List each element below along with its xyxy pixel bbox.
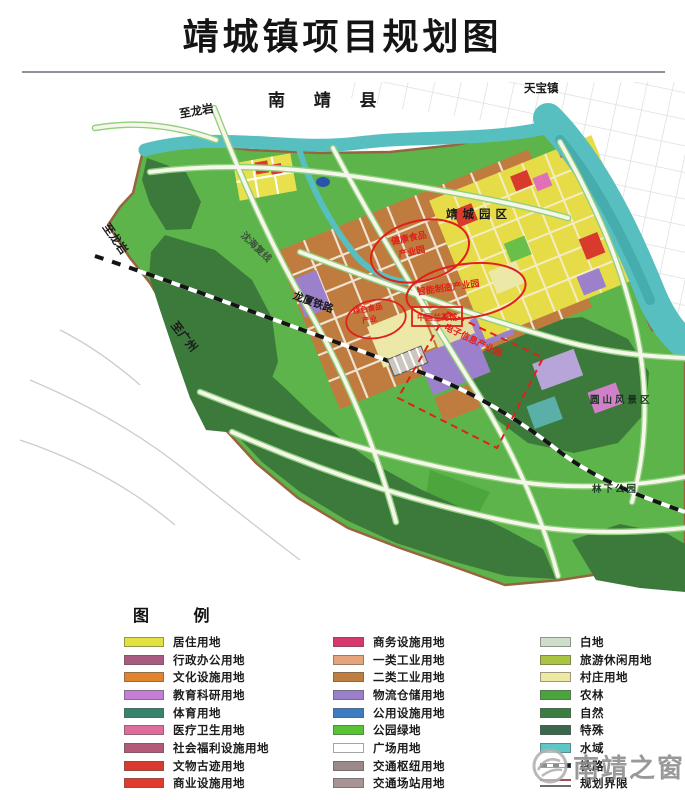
watermark: 南靖之窗 — [529, 745, 685, 787]
legend-label: 白地 — [580, 634, 604, 650]
legend-swatch — [540, 725, 571, 735]
legend-swatch — [540, 672, 571, 682]
legend-label: 社会福利设施用地 — [173, 740, 269, 756]
legend-swatch — [124, 708, 164, 718]
legend-label: 特殊 — [580, 722, 604, 738]
legend-row: 交通场站用地 — [333, 775, 445, 793]
legend-swatch — [540, 690, 571, 700]
legend-row: 自然 — [540, 704, 652, 722]
legend-row: 文物古迹用地 — [124, 757, 269, 775]
legend-swatch — [124, 725, 164, 735]
legend-row: 广场用地 — [333, 739, 445, 757]
legend-swatch — [124, 690, 164, 700]
legend-label: 教育科研用地 — [173, 687, 245, 703]
legend-column-1: 居住用地行政办公用地文化设施用地教育科研用地体育用地医疗卫生用地社会福利设施用地… — [124, 633, 269, 792]
legend-label: 商业设施用地 — [173, 775, 245, 791]
legend-row: 文化设施用地 — [124, 668, 269, 686]
legend-label: 二类工业用地 — [373, 669, 445, 685]
legend-row: 特殊 — [540, 721, 652, 739]
map-label-linxia-park: 林下公园 — [592, 481, 638, 495]
legend-label: 一类工业用地 — [373, 652, 445, 668]
legend-row: 旅游休闲用地 — [540, 651, 652, 669]
legend-row: 行政办公用地 — [124, 651, 269, 669]
map-label-tianbao: 天宝镇 — [524, 80, 559, 96]
legend-swatch — [124, 672, 164, 682]
legend-swatch — [124, 743, 164, 753]
legend-swatch — [540, 708, 571, 718]
legend-row: 商业设施用地 — [124, 775, 269, 793]
legend-label: 交通枢纽用地 — [373, 758, 445, 774]
legend-label: 行政办公用地 — [173, 652, 245, 668]
watermark-text: 南靖之窗 — [573, 748, 685, 785]
legend-row: 医疗卫生用地 — [124, 721, 269, 739]
legend-label: 物流仓储用地 — [373, 687, 445, 703]
legend-title: 图 例 — [133, 602, 229, 626]
legend-row: 社会福利设施用地 — [124, 739, 269, 757]
pond — [316, 177, 330, 187]
legend-swatch — [540, 637, 571, 647]
legend-swatch — [333, 690, 364, 700]
legend-label: 文化设施用地 — [173, 669, 245, 685]
legend-swatch — [333, 778, 364, 788]
legend-label: 居住用地 — [173, 634, 221, 650]
legend-swatch — [124, 655, 164, 665]
legend-row: 村庄用地 — [540, 668, 652, 686]
legend-row: 体育用地 — [124, 704, 269, 722]
legend-swatch — [333, 743, 364, 753]
legend-swatch — [333, 672, 364, 682]
legend-swatch — [333, 725, 364, 735]
legend-swatch — [124, 778, 164, 788]
legend-label: 自然 — [580, 705, 604, 721]
map-label-jingcheng-park: 靖城园区 — [446, 206, 512, 222]
map-label-yuanshan-scenic: 圆山风景区 — [590, 392, 653, 406]
legend-column-2: 商务设施用地一类工业用地二类工业用地物流仓储用地公用设施用地公园绿地广场用地交通… — [333, 633, 445, 792]
legend-label: 广场用地 — [373, 740, 421, 756]
legend-row: 物流仓储用地 — [333, 686, 445, 704]
legend-swatch — [333, 708, 364, 718]
legend-swatch — [333, 761, 364, 771]
legend-swatch — [333, 655, 364, 665]
legend-swatch — [540, 655, 571, 665]
legend-label: 商务设施用地 — [373, 634, 445, 650]
legend-row: 农林 — [540, 686, 652, 704]
legend-row: 教育科研用地 — [124, 686, 269, 704]
legend-swatch — [124, 761, 164, 771]
legend-label: 体育用地 — [173, 705, 221, 721]
map-label-county: 南 靖 县 — [268, 86, 388, 111]
legend-label: 交通场站用地 — [373, 775, 445, 791]
legend-row: 居住用地 — [124, 633, 269, 651]
legend-row: 白地 — [540, 633, 652, 651]
legend-label: 村庄用地 — [580, 669, 628, 685]
legend-label: 文物古迹用地 — [173, 758, 245, 774]
legend-row: 公园绿地 — [333, 721, 445, 739]
legend-label: 公用设施用地 — [373, 705, 445, 721]
legend-label: 医疗卫生用地 — [173, 722, 245, 738]
legend-label: 旅游休闲用地 — [580, 652, 652, 668]
legend-row: 商务设施用地 — [333, 633, 445, 651]
legend-row: 二类工业用地 — [333, 668, 445, 686]
legend-swatch — [124, 637, 164, 647]
legend-swatch — [333, 637, 364, 647]
legend-label: 公园绿地 — [373, 722, 421, 738]
legend-row: 公用设施用地 — [333, 704, 445, 722]
legend-label: 农林 — [580, 687, 604, 703]
watermark-logo-icon — [529, 745, 571, 787]
legend-row: 交通枢纽用地 — [333, 757, 445, 775]
legend-row: 一类工业用地 — [333, 651, 445, 669]
